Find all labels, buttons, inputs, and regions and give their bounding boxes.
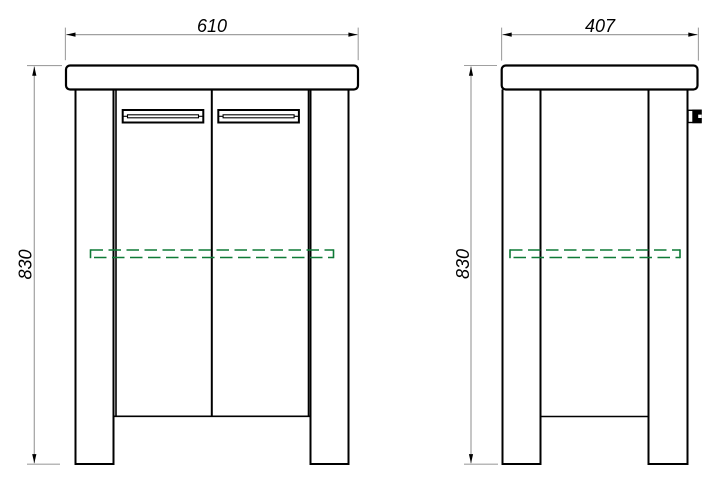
svg-text:830: 830 (16, 249, 36, 279)
svg-text:610: 610 (197, 16, 227, 36)
svg-text:407: 407 (585, 16, 616, 36)
svg-text:830: 830 (453, 249, 473, 279)
